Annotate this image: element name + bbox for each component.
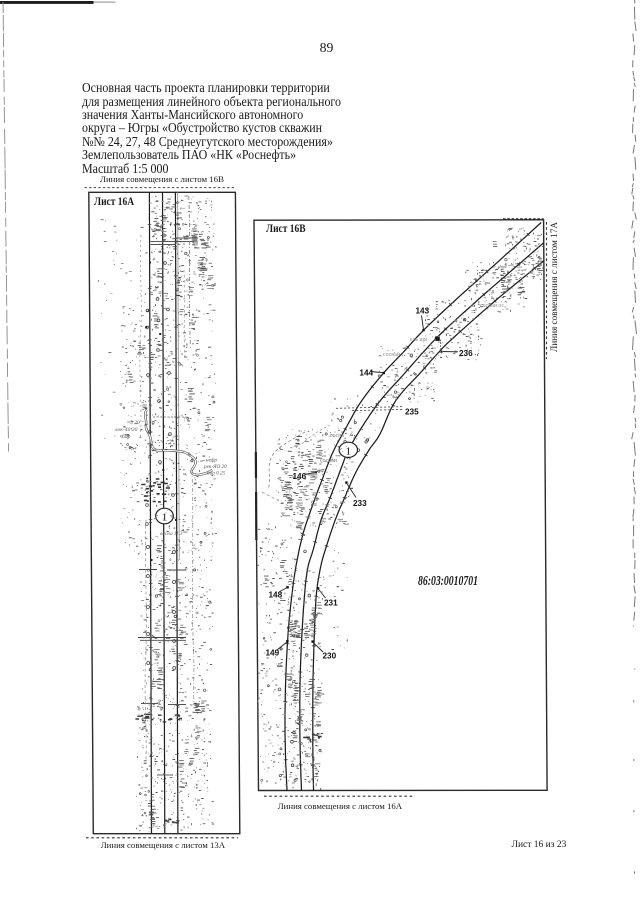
svg-text:соснаи: соснаи (320, 458, 337, 464)
svg-text:230: 230 (323, 652, 337, 661)
svg-text:лок-40 20: лок-40 20 (114, 427, 138, 433)
svg-text:235: 235 (405, 408, 419, 417)
svg-text:бир: бир (122, 433, 131, 440)
svg-text:веола П 3°: веола П 3° (160, 530, 185, 537)
svg-text:ель щи: ель щи (410, 337, 427, 343)
svg-text:нефр: нефр (206, 457, 217, 464)
svg-text:231: 231 (324, 599, 338, 608)
svg-text:рек-ЯО 20: рек-ЯО 20 (203, 464, 227, 470)
svg-text:233: 233 (353, 499, 367, 508)
svg-text:≈5 20: ≈5 20 (127, 420, 140, 426)
svg-text:соснай: соснай (383, 351, 400, 358)
svg-text:1: 1 (346, 445, 352, 457)
svg-text:236: 236 (459, 349, 473, 358)
svg-text:149: 149 (266, 649, 280, 658)
svg-text:бир 0.25: бир 0.25 (207, 470, 226, 477)
svg-text:соснаи ос: соснаи ос (480, 303, 504, 309)
svg-text:144: 144 (359, 369, 373, 378)
svg-text:1: 1 (162, 512, 168, 524)
